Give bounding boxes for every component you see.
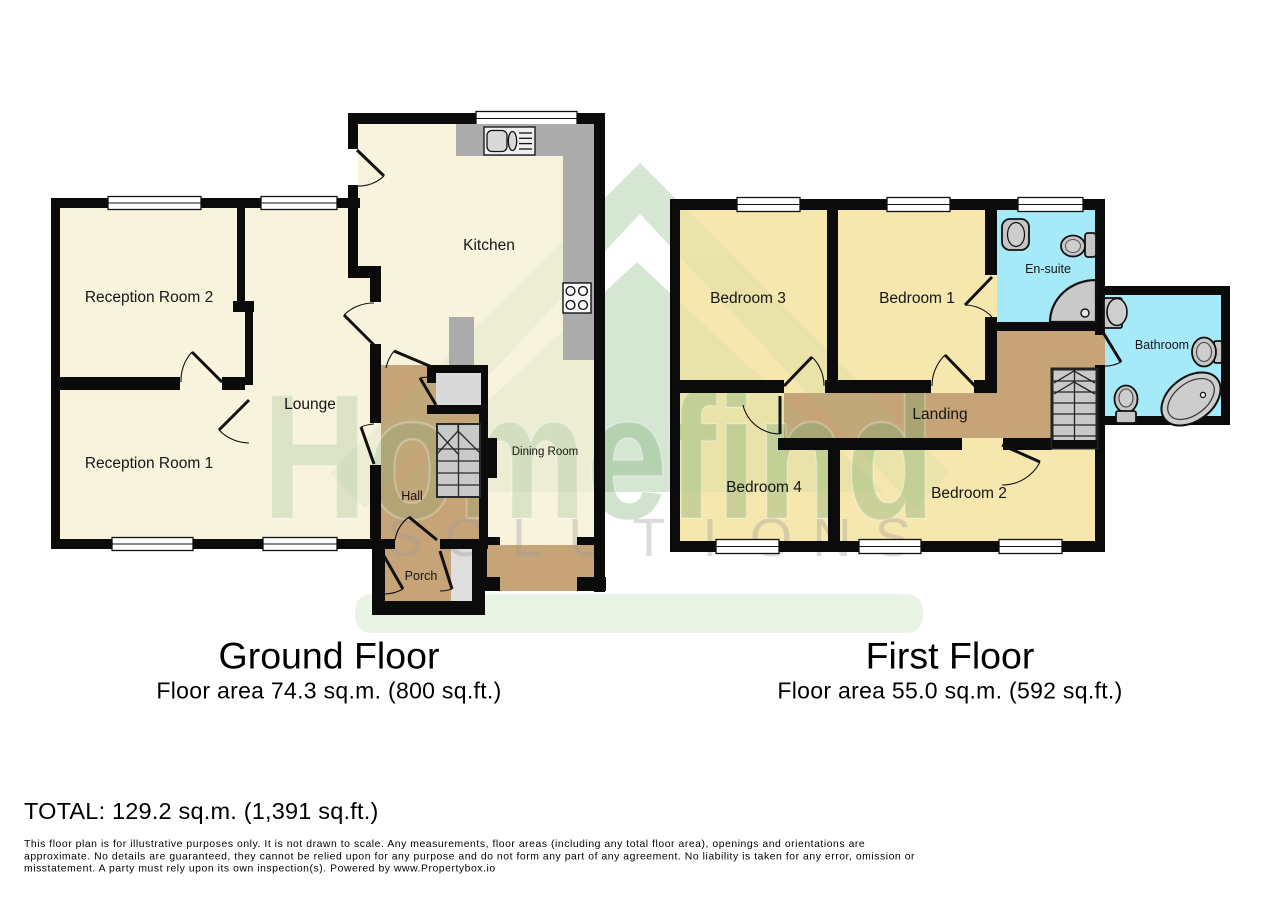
svg-text:Bedroom 3: Bedroom 3 xyxy=(710,290,786,307)
svg-text:Ground Floor: Ground Floor xyxy=(219,635,440,677)
svg-text:I: I xyxy=(702,508,717,568)
svg-text:T: T xyxy=(633,508,666,568)
svg-text:Floor area 55.0 sq.m. (592 sq.: Floor area 55.0 sq.m. (592 sq.ft.) xyxy=(777,678,1122,704)
svg-text:En-suite: En-suite xyxy=(1025,262,1071,276)
svg-text:Dining Room: Dining Room xyxy=(512,446,578,458)
svg-text:L: L xyxy=(512,508,542,568)
svg-text:Reception Room 2: Reception Room 2 xyxy=(85,289,213,306)
svg-text:O: O xyxy=(750,508,792,568)
svg-text:First Floor: First Floor xyxy=(866,635,1035,677)
svg-text:Hall: Hall xyxy=(401,489,423,503)
svg-text:Floor area 74.3 sq.m. (800 sq.: Floor area 74.3 sq.m. (800 sq.ft.) xyxy=(156,678,501,704)
svg-text:Lounge: Lounge xyxy=(284,396,336,413)
svg-text:Bedroom 1: Bedroom 1 xyxy=(879,290,955,307)
svg-text:Landing: Landing xyxy=(912,406,967,423)
svg-text:Reception Room 1: Reception Room 1 xyxy=(85,455,213,472)
svg-text:S: S xyxy=(875,508,911,568)
svg-text:Bedroom 2: Bedroom 2 xyxy=(931,485,1007,502)
svg-text:Bathroom: Bathroom xyxy=(1135,338,1189,352)
svg-text:misstatement. A party must rel: misstatement. A party must rely upon its… xyxy=(24,864,496,875)
svg-text:Bedroom 4: Bedroom 4 xyxy=(726,479,802,496)
svg-text:TOTAL: 129.2 sq.m. (1,391 sq.f: TOTAL: 129.2 sq.m. (1,391 sq.ft.) xyxy=(24,798,378,824)
svg-text:Kitchen: Kitchen xyxy=(463,237,515,254)
svg-text:S: S xyxy=(387,508,423,568)
svg-text:Porch: Porch xyxy=(405,569,438,583)
svg-text:This floor plan is for illustr: This floor plan is for illustrative purp… xyxy=(24,839,865,850)
svg-text:approximate. No details are gu: approximate. No details are guaranteed, … xyxy=(24,852,915,863)
